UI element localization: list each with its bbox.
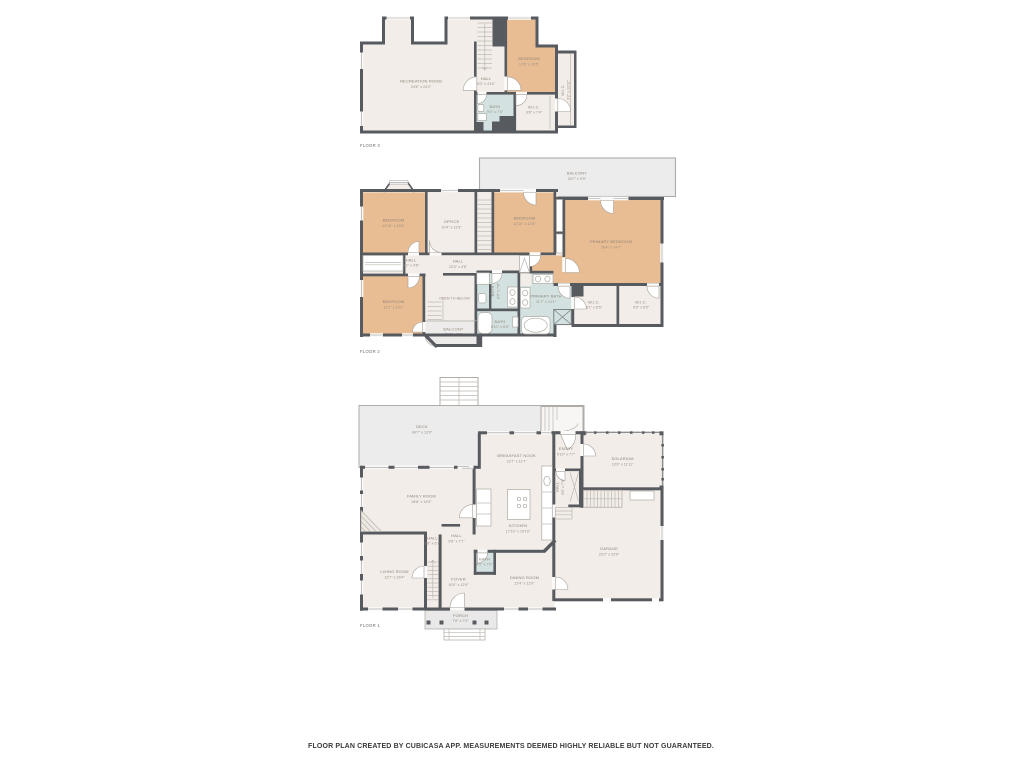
- svg-text:FLOOR PLAN CREATED BY CUBICASA: FLOOR PLAN CREATED BY CUBICASA APP. MEAS…: [308, 743, 714, 750]
- svg-text:HALL: HALL: [451, 533, 462, 538]
- svg-text:W.I.C.: W.I.C.: [635, 300, 647, 305]
- svg-text:FAMILY ROOM: FAMILY ROOM: [407, 494, 436, 499]
- svg-text:DECK: DECK: [416, 424, 428, 429]
- svg-text:10'0" x 12'9": 10'0" x 12'9": [448, 583, 469, 587]
- svg-text:17'10" x 10'10": 17'10" x 10'10": [506, 530, 531, 534]
- svg-text:29'7" x 9'9": 29'7" x 9'9": [568, 177, 587, 181]
- svg-text:HALL: HALL: [453, 259, 464, 264]
- svg-text:9'0" x 7'4": 9'0" x 7'4": [487, 110, 504, 114]
- svg-text:28'8" x 14'9": 28'8" x 14'9": [411, 500, 432, 504]
- svg-text:24'6" x 24'2": 24'6" x 24'2": [411, 85, 432, 89]
- svg-text:BALCONY: BALCONY: [443, 327, 463, 332]
- svg-text:HALL: HALL: [427, 536, 438, 541]
- svg-text:9'10" x 7'7": 9'10" x 7'7": [557, 453, 576, 457]
- svg-text:PRIMARY BEDROOM: PRIMARY BEDROOM: [590, 239, 632, 244]
- svg-text:BALCONY: BALCONY: [567, 171, 587, 176]
- svg-text:RECREATION ROOM: RECREATION ROOM: [400, 79, 442, 84]
- svg-text:PORCH: PORCH: [453, 613, 468, 618]
- svg-text:4'0" x 7'9": 4'0" x 7'9": [476, 563, 493, 567]
- svg-text:6'5" x 7'8": 6'5" x 7'8": [497, 282, 501, 299]
- svg-text:12'4" x 12'9": 12'4" x 12'9": [514, 582, 535, 586]
- svg-text:7'8" x 7'0": 7'8" x 7'0": [452, 619, 469, 623]
- svg-text:OPEN TO BELOW: OPEN TO BELOW: [439, 297, 470, 301]
- svg-text:3'6" x 7'9": 3'6" x 7'9": [561, 478, 565, 495]
- svg-text:13'9" x 11'11": 13'9" x 11'11": [612, 463, 635, 467]
- svg-text:10'4" x 13'3": 10'4" x 13'3": [441, 226, 462, 230]
- svg-text:OFFICE: OFFICE: [444, 219, 460, 224]
- svg-text:13'1" x 13'1": 13'1" x 13'1": [383, 306, 404, 310]
- svg-text:W.I.C.: W.I.C.: [560, 84, 565, 96]
- svg-text:SOLARIUM: SOLARIUM: [611, 456, 633, 461]
- svg-text:FLOOR 3: FLOOR 3: [360, 143, 380, 148]
- svg-text:LIVING ROOM: LIVING ROOM: [380, 569, 408, 574]
- svg-text:BATH: BATH: [479, 557, 490, 562]
- svg-text:BEDROOM: BEDROOM: [383, 218, 405, 223]
- svg-text:FLOOR 2: FLOOR 2: [360, 349, 380, 354]
- svg-text:13'10" x 13'6": 13'10" x 13'6": [382, 224, 405, 228]
- svg-text:BEDROOM: BEDROOM: [383, 299, 405, 304]
- svg-text:HALL: HALL: [555, 481, 560, 492]
- svg-text:11'7" x 13'1": 11'7" x 13'1": [536, 300, 557, 304]
- svg-text:12'10" x 12'6": 12'10" x 12'6": [513, 222, 536, 226]
- svg-text:23'2" x 23'9": 23'2" x 23'9": [599, 553, 620, 557]
- svg-text:BREAKFAST NOOK: BREAKFAST NOOK: [497, 453, 536, 458]
- svg-text:3'2" x 13'11": 3'2" x 13'11": [567, 79, 571, 100]
- svg-text:BEDROOM: BEDROOM: [518, 56, 540, 61]
- svg-text:23'3" x 4'6": 23'3" x 4'6": [449, 265, 468, 269]
- svg-text:W.I.C.: W.I.C.: [588, 300, 600, 305]
- svg-text:8'1" x 6'5": 8'1" x 6'5": [586, 306, 603, 310]
- svg-text:9'6" x 7'7": 9'6" x 7'7": [448, 540, 465, 544]
- svg-text:13'7" x 16'4": 13'7" x 16'4": [384, 576, 405, 580]
- svg-text:BATH: BATH: [490, 104, 501, 109]
- svg-text:8'10" x 6'5": 8'10" x 6'5": [491, 325, 510, 329]
- svg-text:49'7" x 13'9": 49'7" x 13'9": [412, 431, 433, 435]
- svg-text:BEDROOM: BEDROOM: [514, 216, 536, 221]
- svg-text:DINING ROOM: DINING ROOM: [510, 575, 539, 580]
- svg-text:PRIMARY BATH: PRIMARY BATH: [530, 294, 561, 299]
- svg-text:9'9" x 6'5": 9'9" x 6'5": [633, 306, 650, 310]
- svg-text:5'0" x 4'10": 5'0" x 4'10": [477, 82, 496, 86]
- svg-text:13'7" x 11'7": 13'7" x 11'7": [506, 460, 527, 464]
- svg-text:W.I.C.: W.I.C.: [528, 105, 540, 110]
- svg-text:26'4" x 14'7": 26'4" x 14'7": [601, 246, 622, 250]
- svg-text:GARAGE: GARAGE: [600, 546, 618, 551]
- svg-text:HALL: HALL: [481, 76, 492, 81]
- svg-text:FOYER: FOYER: [451, 577, 466, 582]
- svg-text:12'6" x 16'5": 12'6" x 16'5": [519, 63, 540, 67]
- svg-text:HALL: HALL: [406, 258, 417, 263]
- svg-text:BATH: BATH: [495, 319, 506, 324]
- svg-text:9'2" x 4'6": 9'2" x 4'6": [403, 264, 420, 268]
- svg-text:FLOOR 1: FLOOR 1: [360, 623, 380, 628]
- svg-text:KITCHEN: KITCHEN: [509, 523, 528, 528]
- svg-text:9'8" x 7'4": 9'8" x 7'4": [526, 111, 543, 115]
- svg-text:BATH: BATH: [490, 286, 495, 297]
- svg-text:ENTRY: ENTRY: [559, 446, 573, 451]
- svg-text:3'6" x 6'7": 3'6" x 6'7": [424, 542, 441, 546]
